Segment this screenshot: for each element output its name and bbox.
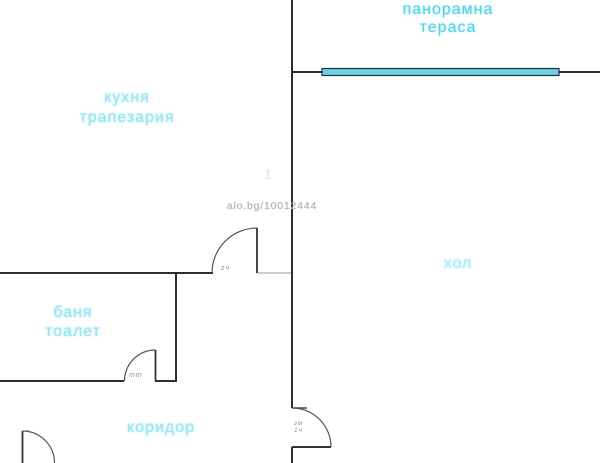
bathroom-door-size-annotation: тт [129, 372, 143, 379]
floor-plan-drawing [0, 0, 600, 463]
room-label-terrace-line1: панорамна [368, 1, 528, 19]
room-label-bathroom: баня тоалет [20, 303, 126, 341]
entry-door-arc [23, 431, 55, 463]
room-label-hall-text: хол [426, 254, 490, 273]
floor-plan: панорамна тераса кухня трапезария хол ба… [0, 0, 600, 463]
room-label-hall: хол [426, 254, 490, 273]
room-label-kitchen-line1: кухня [40, 88, 214, 108]
hall-door-size-annotation: зм 1ч [294, 420, 303, 434]
site-watermark: alo.bg/10012444 [211, 200, 333, 212]
room-label-corridor-text: коридор [108, 418, 214, 437]
faint-watermark-digit: 1 [264, 166, 272, 182]
room-label-corridor: коридор [108, 418, 214, 437]
room-label-bathroom-line1: баня [20, 303, 126, 322]
room-label-bathroom-line2: тоалет [20, 322, 126, 341]
room-label-kitchen: кухня трапезария [40, 88, 214, 128]
terrace-window [322, 69, 559, 76]
room-label-terrace: панорамна тераса [368, 1, 528, 37]
room-label-kitchen-line2: трапезария [40, 108, 214, 128]
kitchen-door-size-annotation: гч [221, 265, 230, 272]
kitchen-door-arc [212, 228, 257, 273]
room-label-terrace-line2: тераса [368, 19, 528, 37]
